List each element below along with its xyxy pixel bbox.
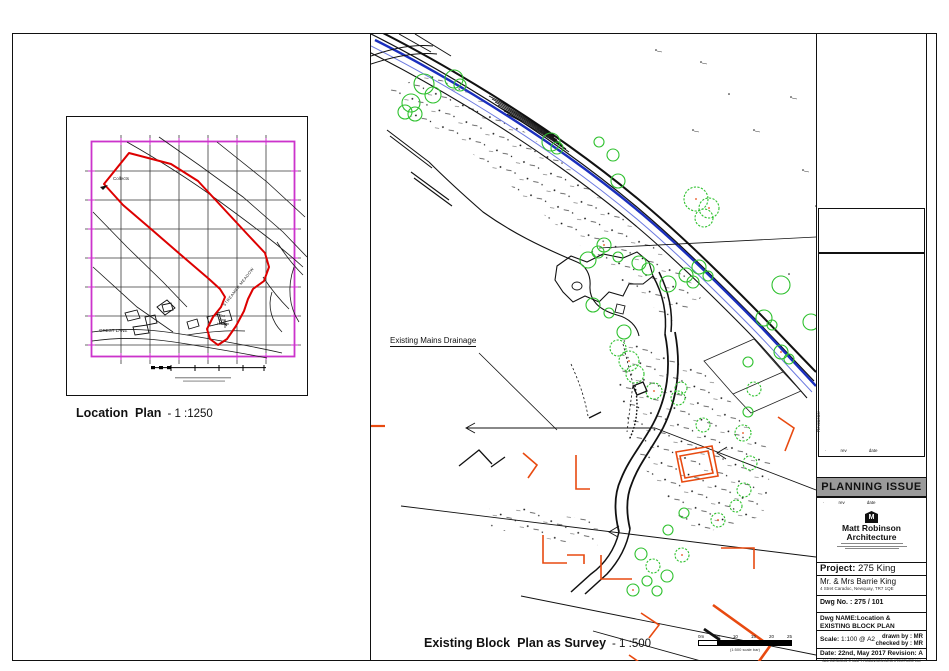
date-row: Date: 22nd, May 2017 Revision: A — [817, 648, 926, 658]
map-label-house: The King House — [217, 315, 227, 327]
block-plan-scale-bar: 0m5 1015 2025 (1:500 scale bar) — [698, 634, 792, 652]
revision-header-row: · rev date — [825, 448, 918, 453]
scale-bar-note: (1:500 scale bar) — [698, 647, 792, 652]
revisions-label: Revisions: — [816, 411, 821, 432]
title-block: Revisions: · rev date PLANNING ISSUE · r… — [816, 33, 927, 661]
scale-row: Scale: 1:100 @ A2 drawn by : MR checked … — [817, 630, 926, 648]
location-plan-caption: Location Plan- 1 :1250 — [76, 406, 213, 420]
drainage-label: Existing Mains Drainage — [390, 336, 476, 347]
logo-box: · rev date M Matt Robinson Architecture — [817, 497, 926, 563]
location-scale-bar — [151, 365, 266, 382]
architect-name: Matt Robinson Architecture — [817, 524, 926, 542]
client-address: 4 Stret Caradoc, Newquay, TR7 1QE — [820, 586, 923, 591]
project-row: Project: 275 King — [817, 562, 926, 575]
building-fragments-black — [459, 382, 647, 467]
client-row: Mr. & Mrs Barrie King 4 Stret Caradoc, N… — [817, 575, 926, 595]
location-plan-drawing — [67, 117, 309, 397]
revision-box-upper — [818, 208, 925, 254]
map-label-collects: Collects — [113, 177, 129, 182]
map-label-lane: GREST LANE — [99, 329, 127, 334]
map-lines — [92, 137, 307, 358]
logo-contact-lines — [817, 543, 926, 549]
block-plan — [371, 34, 816, 661]
client-name: Mr. & Mrs Barrie King — [820, 577, 923, 586]
revision-box: Revisions: · rev date — [818, 252, 925, 457]
copyright-line: ALL DESIGNS © MATT ROBINSON ARCHITECTURE… — [817, 658, 926, 663]
planning-issue-banner: PLANNING ISSUE — [817, 477, 926, 497]
location-plan: Collects GREST LANE The King House STREA… — [66, 116, 308, 396]
revision-header-row-2: · rev date — [823, 500, 920, 505]
scale-bar-ticks: 0m5 1015 2025 — [698, 634, 792, 639]
architect-logo-icon: M — [865, 511, 878, 523]
drawing-number-row: Dwg No. : 275 / 101 — [817, 595, 926, 612]
scale-bar — [698, 640, 792, 646]
block-plan-caption: Existing Block Plan as Survey- 1 :500 — [424, 636, 651, 650]
drawing-name-row: Dwg NAME:Location & EXISTING BLOCK PLAN — [817, 612, 926, 630]
spot-levels — [385, 49, 816, 548]
